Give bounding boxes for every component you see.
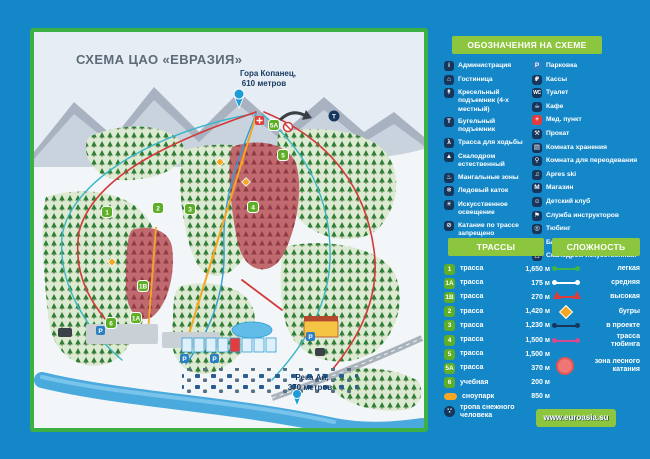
svg-text:6: 6 xyxy=(109,320,113,327)
legend-column-left: iАдминистрация ⌂Гостиница ↟Кресельный по… xyxy=(444,61,532,265)
map-badge-1b: 1В xyxy=(138,281,149,292)
medical-point-icon: + xyxy=(532,115,542,125)
difficulty-row-planned: в проекте xyxy=(552,319,640,333)
legend-item-ticket-office: ₽Кассы xyxy=(532,75,644,85)
trail-badge: 6 xyxy=(444,377,455,388)
trail-badge: 3 xyxy=(444,320,455,331)
legend-item-no-skiing: ⊘Катание по трассе запрещено xyxy=(444,221,532,238)
trail-row-5a: 5Атрасса370 м xyxy=(444,361,550,375)
difficulty-title: СЛОЖНОСТЬ xyxy=(552,238,640,256)
ice-rink-icon: ❄ xyxy=(444,186,454,196)
ski-resort-scheme-page: P P P P xyxy=(0,0,650,459)
legend-panel: ОБОЗНАЧЕНИЯ НА СХЕМЕ iАдминистрация ⌂Гос… xyxy=(444,36,644,265)
trail-badge: 1 xyxy=(444,264,455,275)
trail-length: 1,500 м xyxy=(525,337,550,344)
website-link-button[interactable]: www.euroasia.su xyxy=(536,409,616,427)
trail-length: 1,650 м xyxy=(525,266,550,273)
tbar-lift-icon: T xyxy=(444,117,454,127)
trail-length: 1,230 м xyxy=(525,322,550,329)
trail-badge: 5 xyxy=(444,349,455,360)
trails-panel: ТРАССЫ 1трасса1,650 м 1Атрасса175 м 1Втр… xyxy=(444,238,550,420)
planned-trail-line-icon xyxy=(555,325,577,327)
resort-map: P P P P xyxy=(34,32,424,428)
resort-map-panel: P P P P xyxy=(30,28,428,432)
difficulty-row-medium: средняя xyxy=(552,276,640,290)
legend-item-walking-trail: λТрасса для ходьбы xyxy=(444,138,532,148)
apres-ski-icon: ♫ xyxy=(532,170,542,180)
map-badge-5a: 5А xyxy=(269,120,280,131)
parking-icon: P xyxy=(532,61,542,71)
trail-length: 850 м xyxy=(531,393,550,400)
forest-zone-row: зона лесного катания xyxy=(552,357,640,375)
difficulty-row-tubing: трасса тюбинга xyxy=(552,333,640,349)
storage-room-icon: ▤ xyxy=(532,143,542,153)
svg-text:1А: 1А xyxy=(132,315,141,322)
chairlift-icon: ↟ xyxy=(444,88,454,98)
bbq-zone-icon: ♨ xyxy=(444,173,454,183)
river-label: Река Ай, 370 метров xyxy=(288,373,333,392)
difficulty-panel: СЛОЖНОСТЬ легкая средняя высокая бугры в… xyxy=(552,238,640,375)
legend-item-chairlift: ↟Кресельный подъемник (4-х местный) xyxy=(444,88,532,114)
legend-item-natural-climbing: ▲Скалодром естественный xyxy=(444,152,532,169)
map-badge-5: 5 xyxy=(278,150,289,161)
svg-text:370 метров: 370 метров xyxy=(288,383,333,392)
svg-text:Гора Копанец,: Гора Копанец, xyxy=(240,69,296,78)
legend-item-kids-club: ☺Детский клуб xyxy=(532,197,644,207)
svg-text:P: P xyxy=(212,356,217,363)
legend-item-medical: +Мед. пункт xyxy=(532,115,644,125)
hotel-icon: ⌂ xyxy=(444,75,454,85)
map-badge-1: 1 xyxy=(102,207,113,218)
forest-skiing-zone-icon xyxy=(556,357,574,375)
natural-climbing-wall-icon: ▲ xyxy=(444,152,454,162)
moguls-diamond-icon xyxy=(559,305,573,319)
map-badge-2: 2 xyxy=(153,203,164,214)
svg-text:P: P xyxy=(308,334,313,341)
trail-length: 175 м xyxy=(531,280,550,287)
trail-row-1: 1трасса1,650 м xyxy=(444,262,550,276)
svg-text:2: 2 xyxy=(156,205,160,212)
svg-text:1: 1 xyxy=(105,209,109,216)
map-badge-1a: 1А xyxy=(131,313,142,324)
trail-length: 1,420 м xyxy=(525,308,550,315)
high-difficulty-line-icon xyxy=(557,296,577,298)
trail-row-1a: 1Атрасса175 м xyxy=(444,276,550,290)
toilet-icon: WC xyxy=(532,88,542,98)
legend-title: ОБОЗНАЧЕНИЯ НА СХЕМЕ xyxy=(452,36,602,54)
difficulty-row-high: высокая xyxy=(552,290,640,304)
svg-text:4: 4 xyxy=(251,204,255,211)
trail-badge: 1В xyxy=(444,292,455,303)
map-badge-3: 3 xyxy=(185,204,196,215)
trail-row-snowpark: сноупарк850 м xyxy=(444,390,550,404)
legend-item-cafe: ☕Кафе xyxy=(532,102,644,112)
legend-item-changing-room: ⚲Комната для переодевания xyxy=(532,156,644,166)
legend-item-shop: ММагазин xyxy=(532,183,644,193)
trail-row-4: 4трасса1,500 м xyxy=(444,333,550,347)
no-skiing-icon: ⊘ xyxy=(444,221,454,231)
map-title: СХЕМА ЦАО «ЕВРАЗИЯ» xyxy=(76,52,242,67)
trail-length: 270 м xyxy=(531,294,550,301)
legend-item-parking: PПарковка xyxy=(532,61,644,71)
legend-item-tubing: ◎Тюбинг xyxy=(532,224,644,234)
legend-item-apres-ski: ♫Apres ski xyxy=(532,170,644,180)
svg-text:5А: 5А xyxy=(270,122,279,129)
yeti-footprint-icon: ∵ xyxy=(444,406,455,417)
legend-item-lighting: ☀Искусственное освещение xyxy=(444,200,532,217)
cafe-icon: ☕ xyxy=(532,102,542,112)
trails-title: ТРАССЫ xyxy=(448,238,544,256)
tubing-trail-line-icon xyxy=(555,340,577,342)
trail-badge: 5А xyxy=(444,363,455,374)
legend-item-toilet: WCТуалет xyxy=(532,88,644,98)
svg-text:P: P xyxy=(98,328,103,335)
trail-row-3: 3трасса1,230 м xyxy=(444,319,550,333)
trail-row-5: 5трасса1,500 м xyxy=(444,347,550,361)
trail-row-6: 6учебная200 м xyxy=(444,376,550,390)
ticket-office-icon: ₽ xyxy=(532,75,542,85)
kids-club-icon: ☺ xyxy=(532,197,542,207)
trail-badge: 2 xyxy=(444,306,455,317)
easy-trail-line-icon xyxy=(555,268,577,270)
legend-item-bbq: ♨Мангальные зоны xyxy=(444,173,532,183)
svg-text:610 метров: 610 метров xyxy=(242,79,287,88)
svg-text:Река Ай,: Река Ай, xyxy=(295,373,328,382)
shop-icon: М xyxy=(532,183,542,193)
svg-text:1В: 1В xyxy=(139,283,148,290)
tubing-icon: ◎ xyxy=(532,224,542,234)
instructors-icon: ⚑ xyxy=(532,211,542,221)
snowpark-icon xyxy=(444,393,457,400)
trail-length: 1,500 м xyxy=(525,351,550,358)
map-badge-6: 6 xyxy=(106,318,117,329)
artificial-lighting-icon: ☀ xyxy=(444,200,454,210)
medium-trail-line-icon xyxy=(555,282,577,284)
map-badge-4: 4 xyxy=(248,202,259,213)
legend-column-right: PПарковка ₽Кассы WCТуалет ☕Кафе +Мед. пу… xyxy=(532,61,644,265)
legend-item-administration: iАдминистрация xyxy=(444,61,532,71)
legend-item-rental: ⚒Прокат xyxy=(532,129,644,139)
walking-trail-icon: λ xyxy=(444,138,454,148)
trail-length: 200 м xyxy=(531,379,550,386)
legend-item-storage: ▤Комната хранения xyxy=(532,143,644,153)
trail-row-yeti-path: ∵тропа снежного человека xyxy=(444,404,550,420)
svg-text:5: 5 xyxy=(281,152,285,159)
svg-text:3: 3 xyxy=(188,206,192,213)
trail-length: 370 м xyxy=(531,365,550,372)
admin-icon: i xyxy=(444,61,454,71)
legend-item-instructors: ⚑Служба инструкторов xyxy=(532,211,644,221)
svg-text:P: P xyxy=(182,356,187,363)
svg-text:Т: Т xyxy=(332,115,336,121)
legend-item-ice-rink: ❄Ледовый каток xyxy=(444,186,532,196)
trail-badge: 4 xyxy=(444,335,455,346)
legend-item-tbar-lift: TБугельный подъемник xyxy=(444,117,532,134)
legend-item-hotel: ⌂Гостиница xyxy=(444,75,532,85)
rental-icon: ⚒ xyxy=(532,129,542,139)
difficulty-row-moguls: бугры xyxy=(552,305,640,319)
trail-row-2: 2трасса1,420 м xyxy=(444,305,550,319)
trail-row-1b: 1Втрасса270 м xyxy=(444,290,550,304)
trail-badge: 1А xyxy=(444,278,455,289)
changing-room-icon: ⚲ xyxy=(532,156,542,166)
difficulty-row-easy: легкая xyxy=(552,262,640,276)
